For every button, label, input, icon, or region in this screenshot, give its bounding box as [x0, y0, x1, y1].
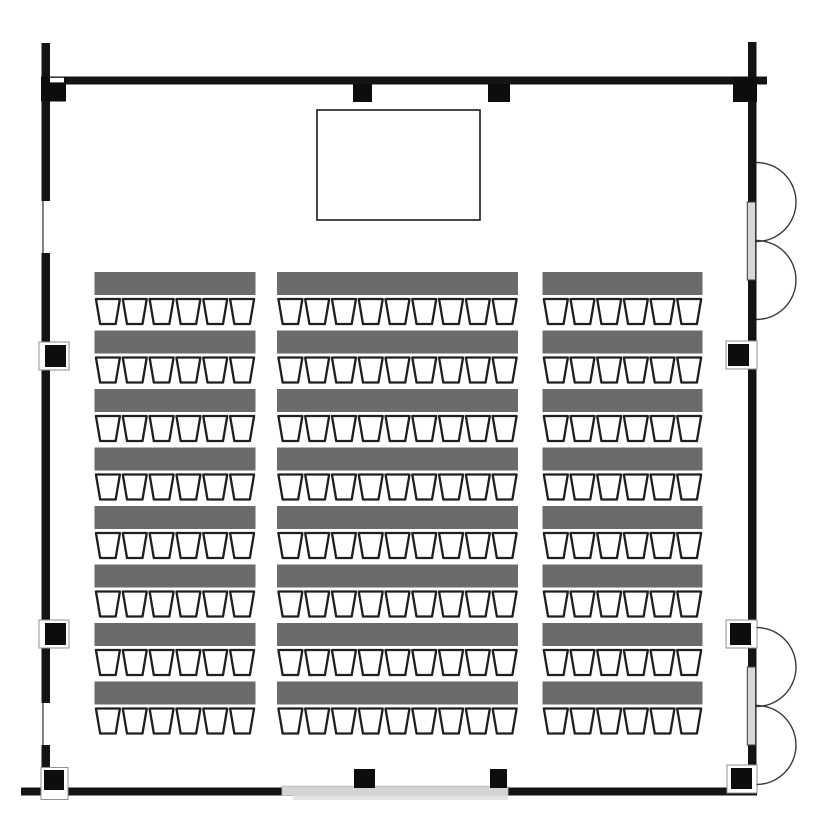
- chair: [230, 650, 254, 675]
- chair: [412, 650, 436, 675]
- chair: [439, 358, 463, 383]
- chair: [278, 592, 302, 617]
- chair: [96, 592, 120, 617]
- chair: [544, 709, 568, 734]
- chair: [176, 299, 200, 324]
- chair: [386, 533, 410, 558]
- table: [277, 331, 518, 354]
- table: [95, 506, 256, 529]
- table: [277, 565, 518, 588]
- chair: [332, 416, 356, 441]
- table: [543, 272, 703, 295]
- chair: [150, 299, 174, 324]
- chair: [544, 533, 568, 558]
- chair: [544, 416, 568, 441]
- chair: [493, 592, 517, 617]
- chair: [466, 533, 490, 558]
- chair: [571, 533, 595, 558]
- chair: [203, 650, 227, 675]
- floor-plan: [0, 0, 840, 840]
- chair: [677, 475, 701, 500]
- chair: [305, 416, 329, 441]
- chair: [493, 650, 517, 675]
- chair: [597, 592, 621, 617]
- wall-left: [42, 43, 51, 788]
- chair: [412, 358, 436, 383]
- chair: [123, 650, 147, 675]
- floor-plan-canvas: [0, 0, 840, 840]
- chair: [571, 299, 595, 324]
- chair: [96, 533, 120, 558]
- chair: [624, 416, 648, 441]
- chair: [203, 533, 227, 558]
- chair: [439, 475, 463, 500]
- chair: [597, 299, 621, 324]
- chair: [305, 299, 329, 324]
- chair: [466, 592, 490, 617]
- chair: [544, 299, 568, 324]
- chair: [624, 592, 648, 617]
- chair: [176, 475, 200, 500]
- chair: [332, 709, 356, 734]
- chair: [677, 650, 701, 675]
- chair: [359, 475, 383, 500]
- chair: [123, 475, 147, 500]
- chair: [493, 299, 517, 324]
- chair: [439, 709, 463, 734]
- chair: [386, 358, 410, 383]
- chair: [305, 592, 329, 617]
- chair: [439, 592, 463, 617]
- chair: [544, 358, 568, 383]
- chair: [677, 709, 701, 734]
- chair: [651, 533, 675, 558]
- chair: [230, 709, 254, 734]
- chair: [278, 709, 302, 734]
- chair: [493, 475, 517, 500]
- chair: [176, 416, 200, 441]
- chair: [677, 299, 701, 324]
- chair: [651, 299, 675, 324]
- wall-fixture-right-lower: [730, 623, 751, 645]
- chair: [466, 299, 490, 324]
- chair: [412, 416, 436, 441]
- chair: [544, 475, 568, 500]
- chair: [493, 533, 517, 558]
- column-top-b: [488, 84, 510, 102]
- chair: [359, 709, 383, 734]
- table: [95, 331, 256, 354]
- stage-area: [317, 110, 480, 220]
- chair: [651, 475, 675, 500]
- chair: [597, 533, 621, 558]
- chair: [278, 299, 302, 324]
- chair: [278, 358, 302, 383]
- chair: [305, 533, 329, 558]
- chair: [278, 650, 302, 675]
- chair: [150, 475, 174, 500]
- chair: [386, 475, 410, 500]
- chair: [624, 709, 648, 734]
- chair: [230, 475, 254, 500]
- chair: [230, 358, 254, 383]
- chair: [332, 533, 356, 558]
- sliding-door-bottom-lip: [293, 795, 508, 800]
- chair: [571, 650, 595, 675]
- chair: [412, 299, 436, 324]
- chair: [624, 358, 648, 383]
- chair: [203, 358, 227, 383]
- chair: [677, 533, 701, 558]
- wall-top: [44, 77, 767, 85]
- column-bottom-a: [354, 769, 375, 788]
- chair: [176, 709, 200, 734]
- chair: [332, 299, 356, 324]
- chair: [230, 416, 254, 441]
- chair: [150, 358, 174, 383]
- chair: [203, 416, 227, 441]
- chair: [466, 709, 490, 734]
- chair: [493, 358, 517, 383]
- chair: [123, 592, 147, 617]
- table: [277, 682, 518, 705]
- chair: [571, 358, 595, 383]
- chair: [203, 592, 227, 617]
- chair: [96, 358, 120, 383]
- chair: [123, 358, 147, 383]
- chair: [123, 299, 147, 324]
- chair: [597, 650, 621, 675]
- corner-post-notch: [50, 78, 64, 83]
- chair: [305, 358, 329, 383]
- chair: [150, 709, 174, 734]
- chair: [466, 475, 490, 500]
- chair: [305, 475, 329, 500]
- chair: [176, 592, 200, 617]
- chair: [439, 650, 463, 675]
- table: [543, 565, 703, 588]
- table: [277, 389, 518, 412]
- chair: [332, 592, 356, 617]
- chair: [651, 358, 675, 383]
- chair: [544, 592, 568, 617]
- table: [543, 448, 703, 471]
- chair: [150, 533, 174, 558]
- table: [277, 623, 518, 646]
- chair: [176, 650, 200, 675]
- chair: [412, 709, 436, 734]
- chair: [386, 416, 410, 441]
- table: [277, 272, 518, 295]
- corner-post-bottom-left: [44, 770, 64, 790]
- chair: [359, 650, 383, 675]
- chair: [412, 592, 436, 617]
- chair: [386, 650, 410, 675]
- chair: [624, 299, 648, 324]
- chair: [386, 592, 410, 617]
- table: [277, 448, 518, 471]
- chair: [624, 475, 648, 500]
- chair: [230, 592, 254, 617]
- chair: [203, 475, 227, 500]
- table: [277, 506, 518, 529]
- chair: [359, 358, 383, 383]
- chair: [493, 416, 517, 441]
- table: [95, 389, 256, 412]
- chair: [176, 358, 200, 383]
- chair: [677, 358, 701, 383]
- chair: [359, 533, 383, 558]
- chair: [230, 299, 254, 324]
- corner-post-bottom-right: [731, 768, 752, 789]
- chair: [597, 358, 621, 383]
- chair: [571, 475, 595, 500]
- sliding-door-bottom: [282, 786, 508, 795]
- chair: [332, 475, 356, 500]
- chair: [123, 533, 147, 558]
- chair: [624, 533, 648, 558]
- chair: [439, 299, 463, 324]
- chair: [278, 533, 302, 558]
- chair: [96, 709, 120, 734]
- column-bottom-b: [490, 769, 507, 788]
- chair: [412, 475, 436, 500]
- chair: [651, 650, 675, 675]
- chair: [278, 475, 302, 500]
- chair: [359, 299, 383, 324]
- chair: [597, 709, 621, 734]
- table: [543, 506, 703, 529]
- table: [543, 682, 703, 705]
- chair: [176, 533, 200, 558]
- chair: [203, 299, 227, 324]
- chair: [96, 650, 120, 675]
- chair: [150, 650, 174, 675]
- chair: [466, 358, 490, 383]
- chair: [332, 650, 356, 675]
- chair: [677, 592, 701, 617]
- chair: [123, 709, 147, 734]
- chair: [466, 416, 490, 441]
- chair: [571, 592, 595, 617]
- chair: [150, 592, 174, 617]
- table: [543, 389, 703, 412]
- chair: [597, 416, 621, 441]
- double-door-right-upper: [747, 202, 755, 280]
- chair: [624, 650, 648, 675]
- table: [543, 331, 703, 354]
- table: [95, 448, 256, 471]
- chair: [96, 299, 120, 324]
- chair: [386, 709, 410, 734]
- chair: [571, 709, 595, 734]
- chair: [651, 416, 675, 441]
- chair: [677, 416, 701, 441]
- chair: [651, 592, 675, 617]
- chair: [412, 533, 436, 558]
- table: [543, 623, 703, 646]
- wall-fixture-left-lower: [45, 623, 66, 645]
- chair: [203, 709, 227, 734]
- chair: [96, 475, 120, 500]
- chair: [439, 533, 463, 558]
- chair: [544, 650, 568, 675]
- chair: [332, 358, 356, 383]
- chair: [651, 709, 675, 734]
- wall-fixture-left-upper: [45, 345, 66, 367]
- column-top-a: [353, 84, 372, 102]
- chair: [278, 416, 302, 441]
- chair: [96, 416, 120, 441]
- table: [95, 623, 256, 646]
- chair: [359, 416, 383, 441]
- chair: [439, 416, 463, 441]
- chair: [305, 650, 329, 675]
- wall-fixture-right-upper: [728, 344, 749, 366]
- chair: [386, 299, 410, 324]
- chair: [150, 416, 174, 441]
- chair: [359, 592, 383, 617]
- table: [95, 272, 256, 295]
- double-door-right-lower: [747, 667, 755, 745]
- table: [95, 682, 256, 705]
- chair: [230, 533, 254, 558]
- corner-post-top-right: [733, 77, 757, 103]
- table: [95, 565, 256, 588]
- chair: [305, 709, 329, 734]
- chair: [571, 416, 595, 441]
- chair: [123, 416, 147, 441]
- chair: [493, 709, 517, 734]
- chair: [597, 475, 621, 500]
- chair: [466, 650, 490, 675]
